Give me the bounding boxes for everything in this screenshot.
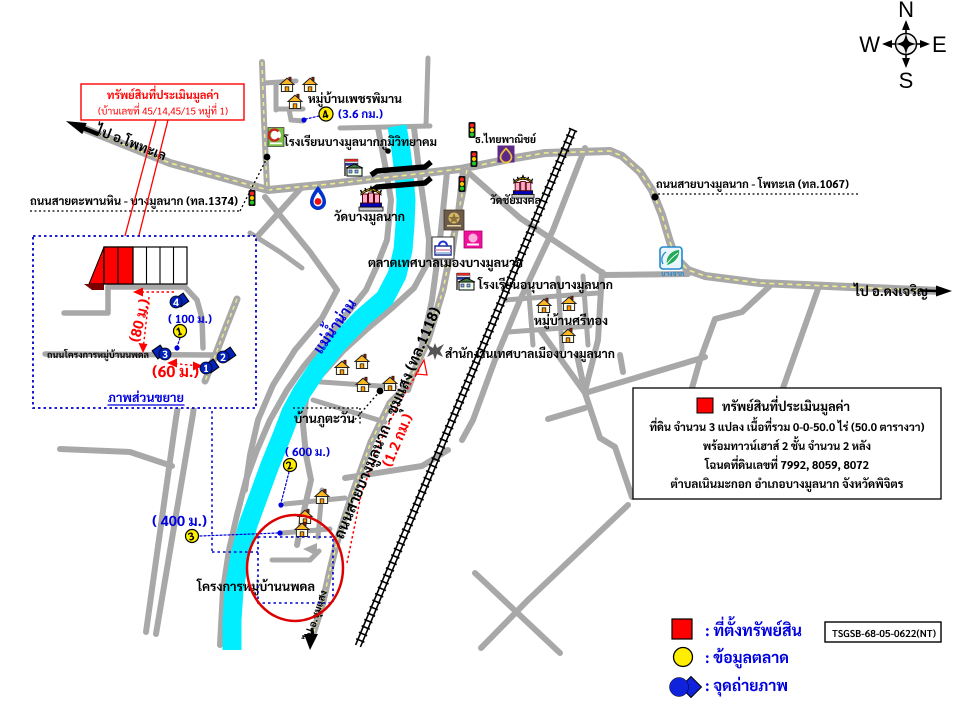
svg-text:E: E xyxy=(932,32,947,57)
svg-text:W: W xyxy=(859,32,880,57)
svg-text:N: N xyxy=(898,0,914,22)
svg-text:S: S xyxy=(899,68,914,93)
